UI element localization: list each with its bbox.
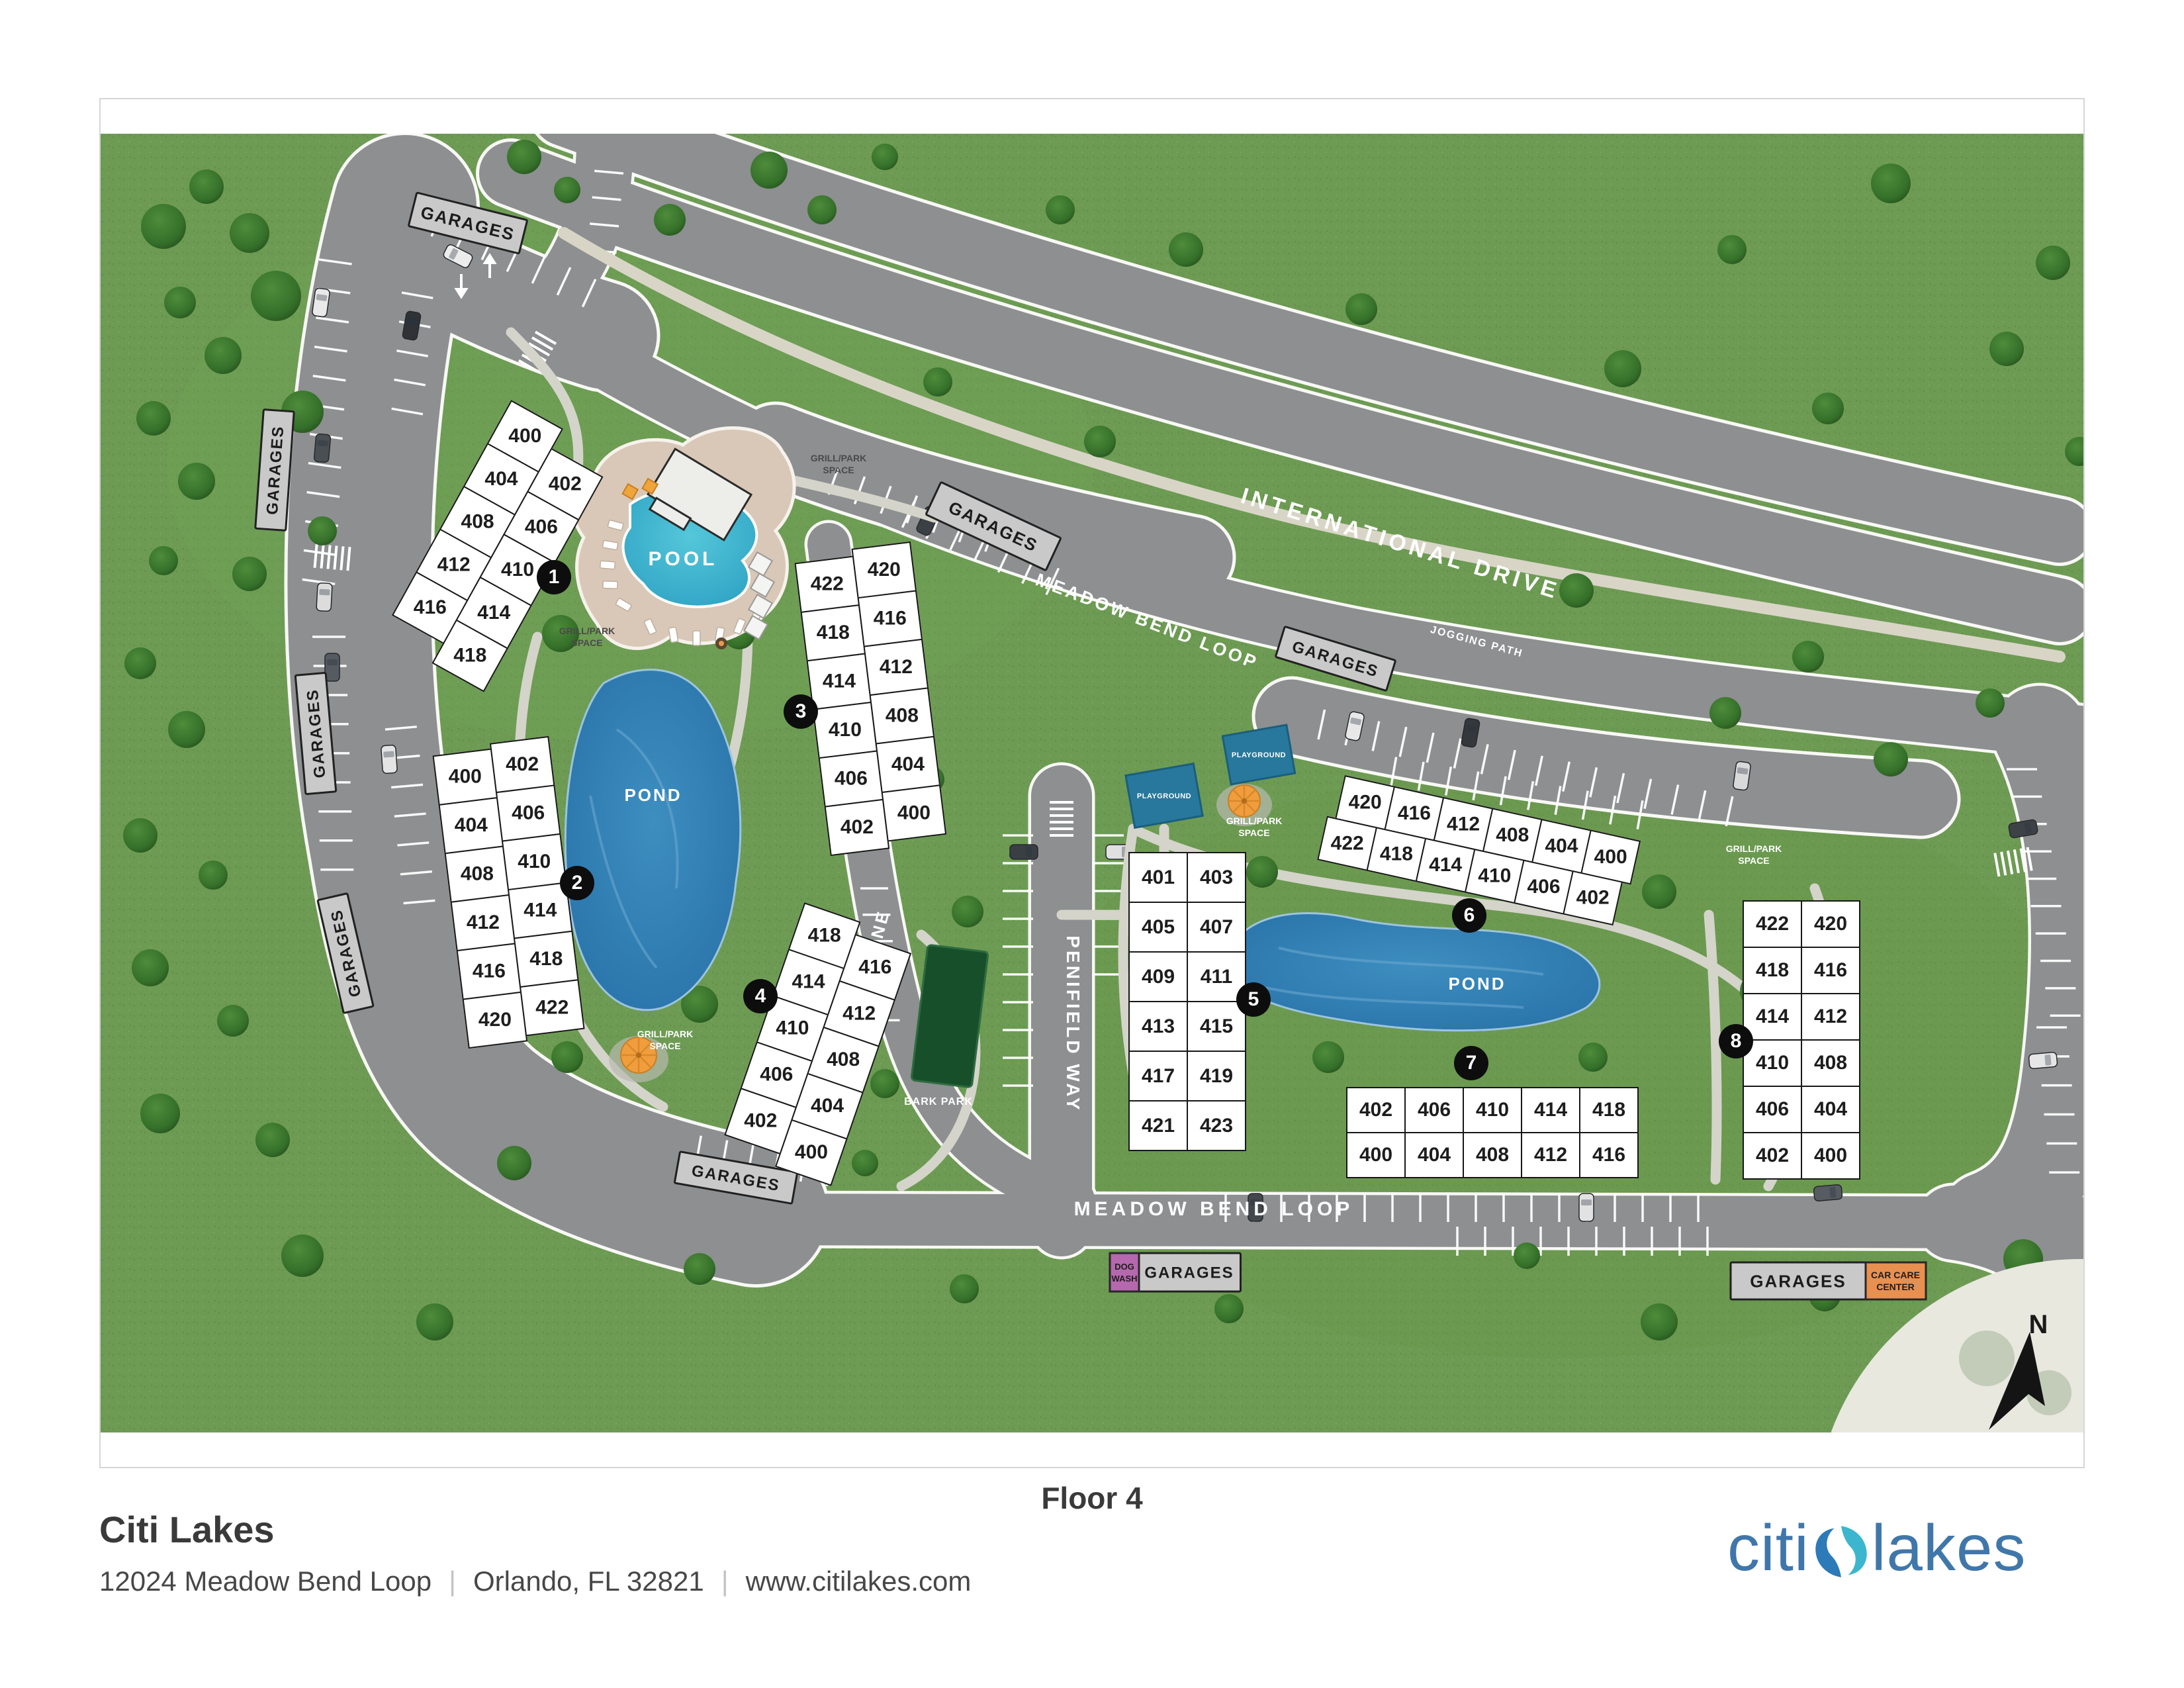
citilakes-logo: citi lakes	[1727, 1511, 2026, 1585]
car-care-label-line1: CAR CARE	[1871, 1270, 1920, 1280]
tree	[952, 896, 983, 927]
garage-label: GARAGES	[1750, 1271, 1846, 1291]
pool-lounger	[600, 561, 615, 569]
tree	[1976, 688, 2005, 718]
tree	[510, 828, 545, 863]
tree	[654, 204, 686, 236]
tree	[281, 1235, 324, 1277]
svg-text:GRILL/PARK: GRILL/PARK	[637, 1029, 694, 1039]
car	[2028, 1052, 2058, 1069]
tree	[123, 818, 158, 853]
playground-label: PLAYGROUND	[1137, 792, 1191, 800]
tree	[1214, 1294, 1244, 1323]
svg-text:SPACE: SPACE	[823, 465, 854, 475]
page: POND POND POOL	[0, 0, 2184, 1688]
tree	[124, 647, 156, 679]
tree	[918, 766, 944, 792]
svg-text:GRILL/PARK: GRILL/PARK	[811, 453, 867, 463]
garage-label: GARAGES	[1144, 1264, 1234, 1282]
tree	[1709, 697, 1741, 729]
tree	[1046, 195, 1075, 224]
tree	[199, 861, 228, 890]
tree	[923, 367, 952, 397]
tree	[1871, 164, 1911, 203]
tree	[507, 140, 541, 174]
tree	[255, 1123, 290, 1157]
car	[1010, 845, 1038, 859]
tree	[1740, 972, 1777, 1009]
tree	[804, 579, 833, 608]
site-map: POND POND POOL	[99, 98, 2085, 1468]
dog-wash: DOG WASH	[1110, 1253, 1139, 1291]
left-pond: POND	[565, 670, 741, 1010]
car	[381, 745, 398, 773]
tree	[1312, 1041, 1344, 1073]
tree	[1345, 293, 1377, 325]
tree	[308, 516, 337, 545]
tree	[1812, 393, 1844, 424]
footer-separator: |	[704, 1566, 746, 1597]
pool-area: POOL	[574, 428, 794, 649]
tree	[189, 169, 224, 204]
tree	[1989, 332, 2024, 366]
svg-text:SPACE: SPACE	[649, 1041, 680, 1051]
car-care-center: CAR CARE CENTER	[1866, 1262, 1926, 1299]
tree	[140, 1094, 180, 1133]
community-name: Citi Lakes	[99, 1508, 971, 1551]
logo-word-2: lakes	[1872, 1511, 2026, 1585]
tree	[1717, 235, 1747, 264]
footer-website[interactable]: www.citilakes.com	[746, 1566, 972, 1597]
tree	[554, 177, 580, 203]
tree	[251, 271, 301, 321]
pond-label: POND	[1448, 974, 1506, 994]
pond-label: POND	[624, 785, 682, 805]
tree	[132, 949, 169, 986]
tree	[1514, 1243, 1540, 1269]
tree	[205, 337, 242, 374]
tree	[136, 401, 171, 436]
tree	[168, 711, 205, 748]
svg-text:GRILL/PARK: GRILL/PARK	[559, 626, 615, 636]
tree	[1642, 874, 1676, 909]
playground-2: PLAYGROUND	[1222, 725, 1295, 784]
tree	[217, 1005, 249, 1037]
tree	[852, 1150, 878, 1176]
tree	[1446, 857, 1475, 886]
tree	[807, 195, 837, 224]
dog-wash-label-line2: WASH	[1112, 1274, 1138, 1284]
pool-lounger	[603, 581, 617, 589]
car	[316, 583, 332, 611]
tree	[232, 557, 267, 591]
tree	[950, 1274, 979, 1303]
tree	[1779, 1094, 1811, 1126]
bark-park-label: BARK PARK	[904, 1096, 973, 1107]
site-map-illustration: POND POND POOL	[101, 134, 2083, 1432]
svg-text:SPACE: SPACE	[571, 637, 602, 648]
footer-separator: |	[432, 1566, 473, 1597]
car	[1579, 1194, 1594, 1221]
tree	[551, 1041, 583, 1073]
compass-north-label: N	[2029, 1310, 2048, 1339]
tree	[1604, 350, 1641, 387]
tree	[1641, 1303, 1678, 1340]
car	[325, 653, 340, 681]
tree	[1792, 641, 1824, 673]
svg-text:SPACE: SPACE	[1738, 855, 1769, 866]
tree	[2036, 246, 2070, 280]
svg-text:GRILL/PARK: GRILL/PARK	[1226, 816, 1283, 826]
tree	[149, 546, 178, 575]
tree	[416, 1303, 453, 1340]
tree	[141, 204, 186, 249]
dog-wash-label-line1: DOG	[1115, 1262, 1134, 1272]
tree	[684, 1253, 715, 1285]
pool-label: POOL	[648, 548, 717, 570]
tree	[497, 1146, 531, 1180]
playground-1: PLAYGROUND	[1126, 764, 1203, 828]
tree	[870, 1069, 899, 1098]
tree	[230, 213, 269, 253]
pool-lounger	[693, 631, 700, 645]
tree	[1578, 1043, 1608, 1072]
tree	[164, 287, 196, 318]
footer: Citi Lakes 12024 Meadow Bend Loop | Orla…	[99, 1508, 971, 1597]
garage-building: GARAGES	[1138, 1253, 1241, 1291]
svg-text:SPACE: SPACE	[1238, 827, 1269, 838]
footer-address: 12024 Meadow Bend Loop	[99, 1566, 432, 1597]
tree	[872, 144, 898, 170]
playground-label: PLAYGROUND	[1232, 751, 1286, 759]
fire-pit-flame	[719, 641, 724, 646]
footer-city: Orlando, FL 32821	[473, 1566, 704, 1597]
car	[314, 434, 331, 463]
tree	[1559, 573, 1594, 608]
logo-word-1: citi	[1727, 1511, 1809, 1585]
tree	[178, 463, 215, 500]
svg-text:GRILL/PARK: GRILL/PARK	[1726, 843, 1782, 854]
car	[1813, 1184, 1843, 1201]
street-label-meadow-bend-loop-bottom: MEADOW BEND LOOP	[1074, 1198, 1354, 1220]
tree	[1169, 232, 1203, 267]
tree	[1084, 426, 1116, 457]
car-care-label-line2: CENTER	[1876, 1282, 1915, 1292]
garage-building: GARAGES	[1731, 1262, 1866, 1299]
tree	[1246, 856, 1278, 888]
logo-swirl-icon	[1812, 1523, 1870, 1581]
tree	[1874, 742, 1908, 776]
street-label-penifield-way: PENIFIELD WAY	[1063, 935, 1083, 1112]
tree	[751, 152, 788, 189]
